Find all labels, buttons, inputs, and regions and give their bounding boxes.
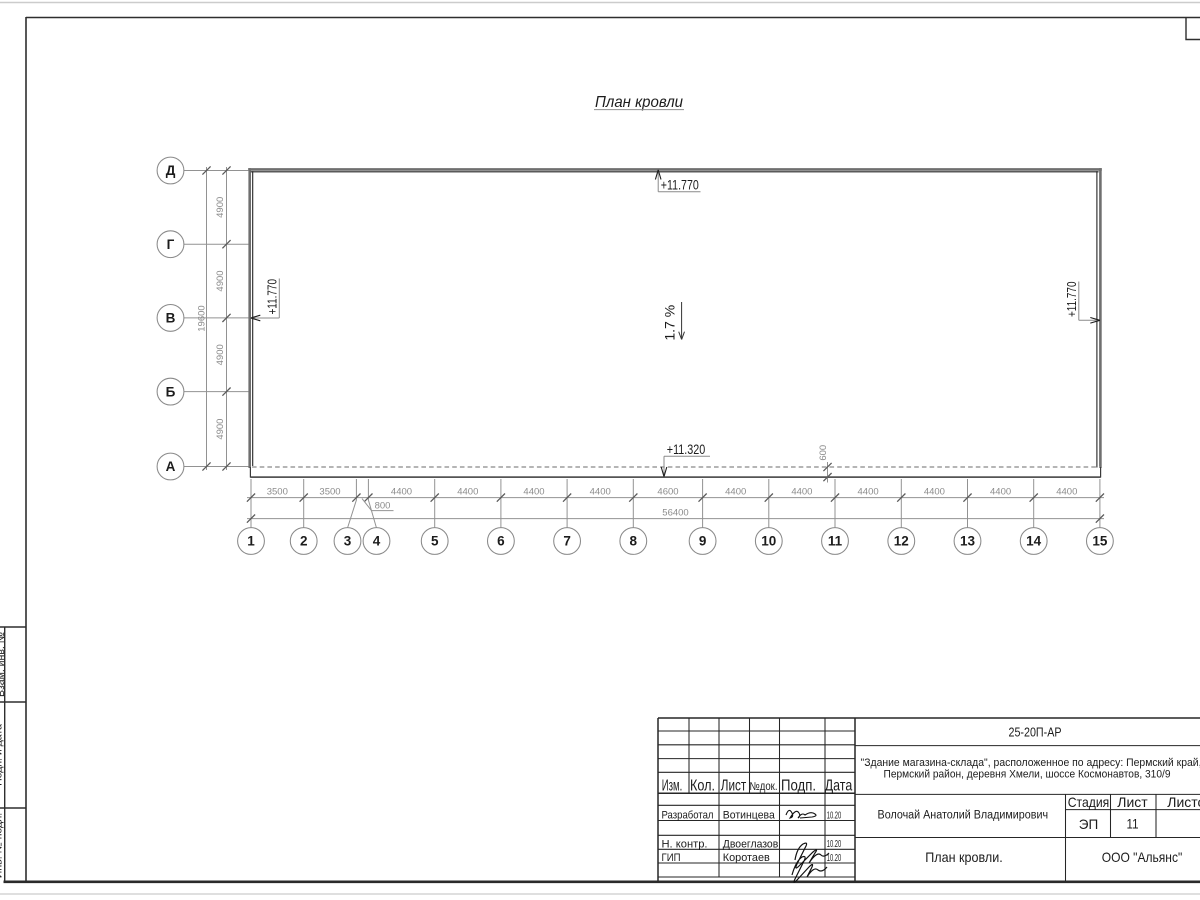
svg-text:4900: 4900 (215, 344, 226, 365)
svg-text:3500: 3500 (267, 487, 288, 498)
svg-text:4900: 4900 (215, 419, 226, 440)
svg-text:4400: 4400 (990, 487, 1011, 498)
svg-text:56400: 56400 (662, 508, 688, 519)
svg-text:В: В (166, 311, 176, 326)
svg-text:4900: 4900 (215, 270, 226, 291)
svg-text:19600: 19600 (196, 305, 207, 331)
svg-text:4400: 4400 (523, 487, 544, 498)
svg-text:11: 11 (1127, 816, 1139, 832)
svg-text:4400: 4400 (791, 487, 812, 498)
svg-text:15: 15 (1092, 534, 1108, 549)
svg-text:Инв. № подл.: Инв. № подл. (0, 813, 5, 878)
svg-text:4400: 4400 (457, 487, 478, 498)
svg-text:10: 10 (761, 534, 776, 549)
svg-text:Листов: Листов (1167, 794, 1200, 810)
svg-text:ООО "Альянс": ООО "Альянс" (1102, 849, 1183, 865)
svg-text:10.20: 10.20 (827, 838, 842, 850)
svg-text:+11.320: +11.320 (667, 442, 706, 457)
svg-text:3: 3 (344, 534, 352, 549)
svg-text:11: 11 (828, 534, 843, 549)
svg-text:Дата: Дата (825, 778, 853, 795)
svg-text:12: 12 (894, 534, 909, 549)
svg-text:25-20П-АР: 25-20П-АР (1009, 726, 1062, 740)
svg-text:4400: 4400 (391, 487, 412, 498)
svg-text:ГИП: ГИП (662, 852, 681, 864)
svg-text:Лист: Лист (721, 778, 747, 795)
svg-text:7: 7 (563, 534, 571, 549)
svg-text:Вотинцева: Вотинцева (723, 810, 776, 822)
svg-text:№док.: №док. (750, 781, 778, 793)
svg-text:14: 14 (1026, 534, 1042, 549)
svg-text:Г: Г (167, 237, 175, 252)
svg-text:Пермский район, деревня Хмели,: Пермский район, деревня Хмели, шоссе Кос… (884, 769, 1171, 781)
svg-text:Волочай Анатолий Владимирович: Волочай Анатолий Владимирович (878, 810, 1049, 822)
svg-text:8: 8 (630, 534, 638, 549)
svg-text:10.20: 10.20 (827, 809, 842, 821)
svg-text:4900: 4900 (215, 197, 226, 218)
svg-text:Кол.: Кол. (690, 778, 715, 795)
svg-text:Двоеглазов: Двоеглазов (723, 838, 779, 850)
svg-text:4400: 4400 (924, 487, 945, 498)
svg-text:Подп. и дата: Подп. и дата (0, 724, 5, 786)
svg-text:ЭП: ЭП (1079, 816, 1099, 832)
svg-text:Н. контр.: Н. контр. (662, 838, 708, 850)
svg-text:2: 2 (300, 534, 308, 549)
svg-text:13: 13 (960, 534, 976, 549)
svg-text:4400: 4400 (590, 487, 611, 498)
svg-text:5: 5 (431, 534, 439, 549)
svg-text:4400: 4400 (1056, 487, 1077, 498)
svg-text:9: 9 (699, 534, 707, 549)
svg-text:Разработал: Разработал (662, 810, 714, 822)
svg-text:6: 6 (497, 534, 505, 549)
svg-text:Б: Б (166, 384, 176, 399)
svg-text:Подп.: Подп. (781, 778, 816, 795)
svg-text:Изм.: Изм. (662, 778, 683, 795)
svg-text:+11.770: +11.770 (1064, 282, 1079, 318)
svg-text:4600: 4600 (657, 487, 678, 498)
svg-text:4400: 4400 (858, 487, 879, 498)
svg-text:Д: Д (166, 163, 176, 178)
svg-text:600: 600 (818, 445, 829, 461)
svg-text:Коротаев: Коротаев (723, 852, 770, 864)
svg-text:+11.770: +11.770 (661, 177, 699, 192)
svg-text:Взам. инв. №: Взам. инв. № (0, 632, 7, 697)
svg-text:800: 800 (375, 501, 391, 512)
svg-text:4400: 4400 (725, 487, 746, 498)
svg-text:+11.770: +11.770 (265, 279, 280, 315)
svg-text:Лист: Лист (1117, 794, 1148, 810)
svg-text:План кровли: План кровли (595, 94, 683, 111)
svg-text:4: 4 (373, 534, 381, 549)
svg-text:1.7 %: 1.7 % (662, 305, 678, 341)
svg-text:3500: 3500 (319, 487, 340, 498)
svg-text:Стадия: Стадия (1068, 794, 1110, 810)
svg-text:План кровли.: План кровли. (925, 849, 1003, 865)
svg-text:"Здание магазина-склада", расп: "Здание магазина-склада", расположенное … (861, 757, 1200, 769)
svg-text:А: А (166, 459, 176, 474)
svg-text:1: 1 (247, 534, 255, 549)
